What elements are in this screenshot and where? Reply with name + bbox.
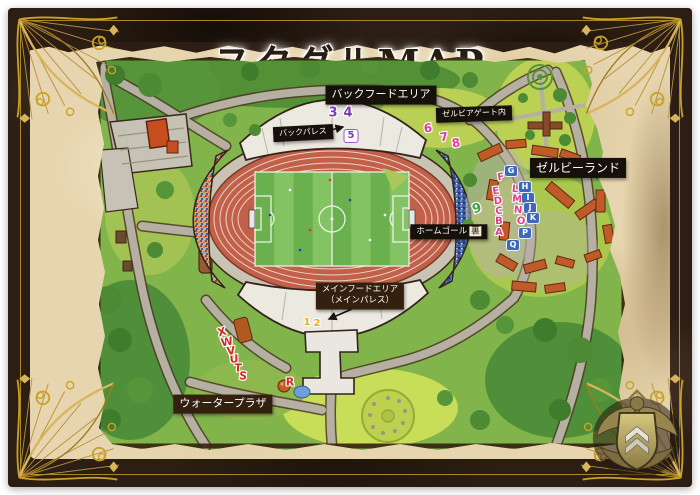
map-marker-K: K <box>527 213 539 223</box>
map-marker-7: 7 <box>439 130 449 143</box>
map-marker-F: F <box>497 172 505 183</box>
gold-filigree-ornament <box>12 367 130 485</box>
map-marker-P: P <box>519 228 531 238</box>
map-marker-2: 2 <box>314 319 321 329</box>
map-marker-3: 3 <box>328 107 337 120</box>
map-marker-O: O <box>516 217 526 228</box>
map-label-back-palace: バックパレス <box>273 124 333 142</box>
map-marker-5: 5 <box>345 130 358 142</box>
map-marker-H: H <box>519 182 531 192</box>
map-marker-I: I <box>522 193 534 203</box>
soccer-pitch <box>249 172 415 266</box>
map-marker-M: M <box>512 195 523 206</box>
map-marker-R: R <box>286 377 294 388</box>
club-crest <box>588 388 686 484</box>
map-marker-A: A <box>495 228 503 238</box>
map-marker-6: 6 <box>423 122 432 135</box>
gold-filigree-ornament <box>570 12 688 130</box>
map-marker-1: 1 <box>304 318 311 328</box>
gold-filigree-ornament <box>12 12 130 130</box>
map-marker-4: 4 <box>343 107 352 120</box>
map-label-home-goal-ura: ホームゴール裏 <box>410 224 487 239</box>
map-label-back-food-area: バックフードエリア <box>326 86 437 105</box>
map-marker-Q: Q <box>507 240 519 250</box>
map-label-zelvy-land: ゼルビーランド <box>530 158 626 178</box>
map-label-zelvia-gate: ゼルビアゲート内 <box>436 105 512 122</box>
stadium-gourmet-map-poster: スタグルMAP <box>0 0 700 495</box>
map-label-main-food-area: メインフードエリア（メインパレス） <box>316 283 404 310</box>
map-marker-B: B <box>495 217 503 227</box>
map-marker-J: J <box>524 203 536 213</box>
map-label-water-plaza: ウォータープラザ <box>173 395 272 414</box>
goal-west <box>249 210 255 228</box>
map-marker-G: G <box>505 166 517 176</box>
